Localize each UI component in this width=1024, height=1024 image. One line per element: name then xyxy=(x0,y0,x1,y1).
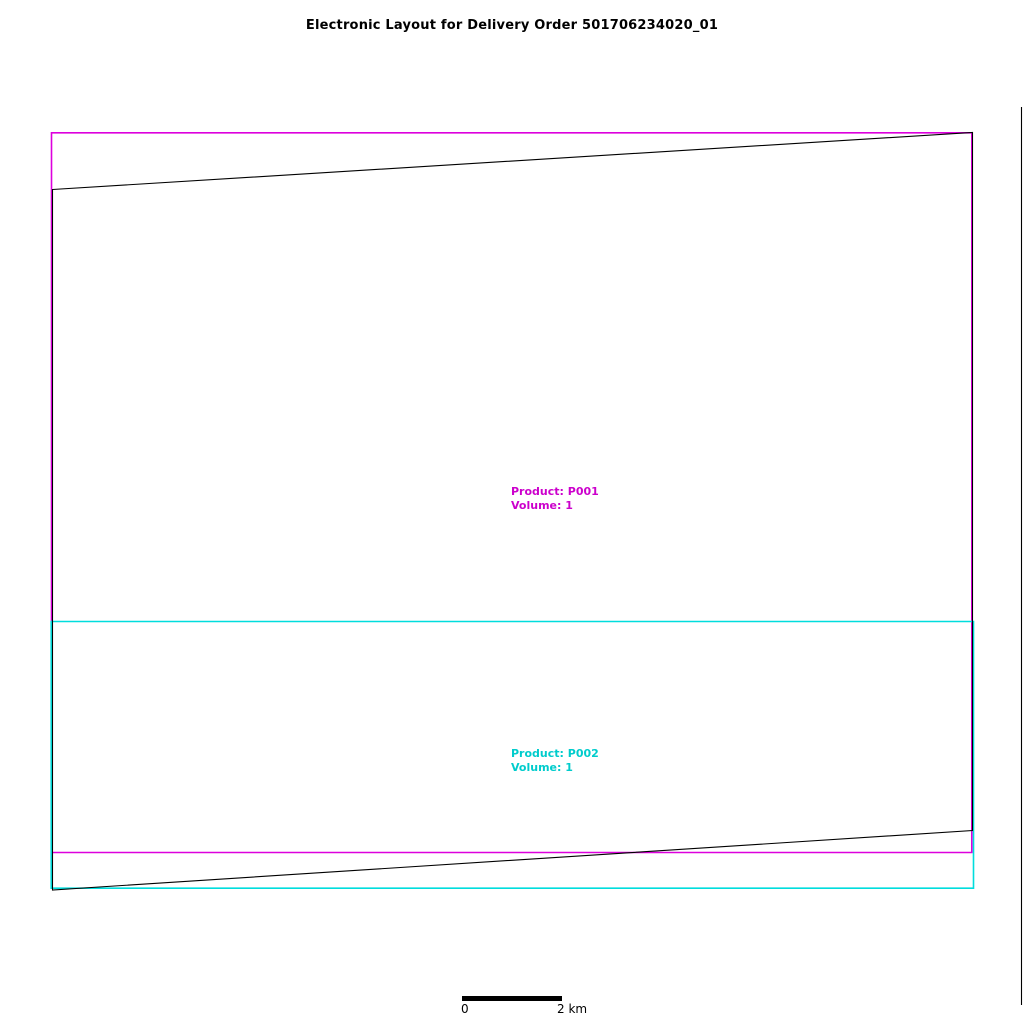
product-p001-label: Product: P001 Volume: 1 xyxy=(511,485,599,513)
product-name-line: Product: P002 xyxy=(511,747,599,761)
product-name-line: Product: P001 xyxy=(511,485,599,499)
volume-line: Volume: 1 xyxy=(511,499,599,513)
electronic-layout-canvas: Electronic Layout for Delivery Order 501… xyxy=(0,0,1024,1024)
scale-bar-line xyxy=(462,996,562,1001)
scale-bar-end-label: 2 km xyxy=(557,1002,587,1016)
product-p002-label: Product: P002 Volume: 1 xyxy=(511,747,599,775)
volume-line: Volume: 1 xyxy=(511,761,599,775)
scale-bar-start-label: 0 xyxy=(461,1002,469,1016)
